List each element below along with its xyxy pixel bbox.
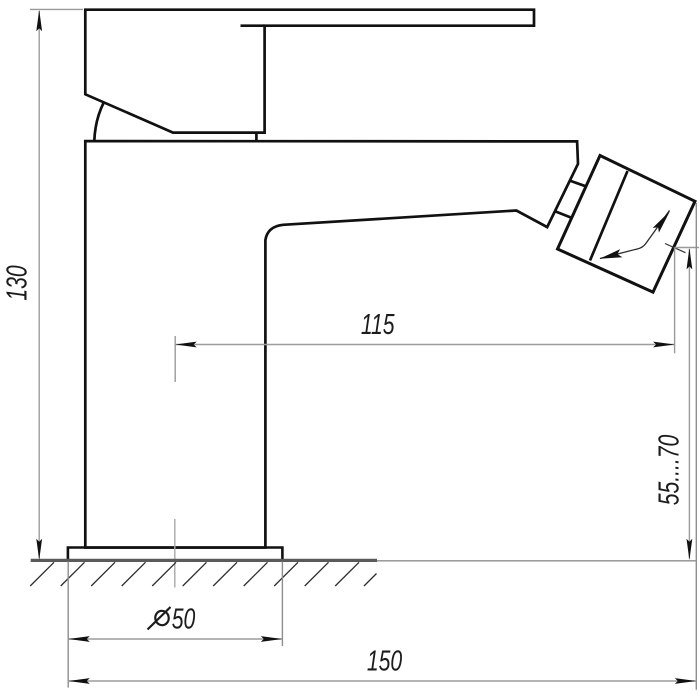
svg-text:130: 130 xyxy=(1,265,33,300)
svg-text:55....70: 55....70 xyxy=(653,435,685,506)
svg-text:50: 50 xyxy=(172,604,196,636)
svg-text:115: 115 xyxy=(361,309,395,341)
svg-text:150: 150 xyxy=(367,645,402,677)
